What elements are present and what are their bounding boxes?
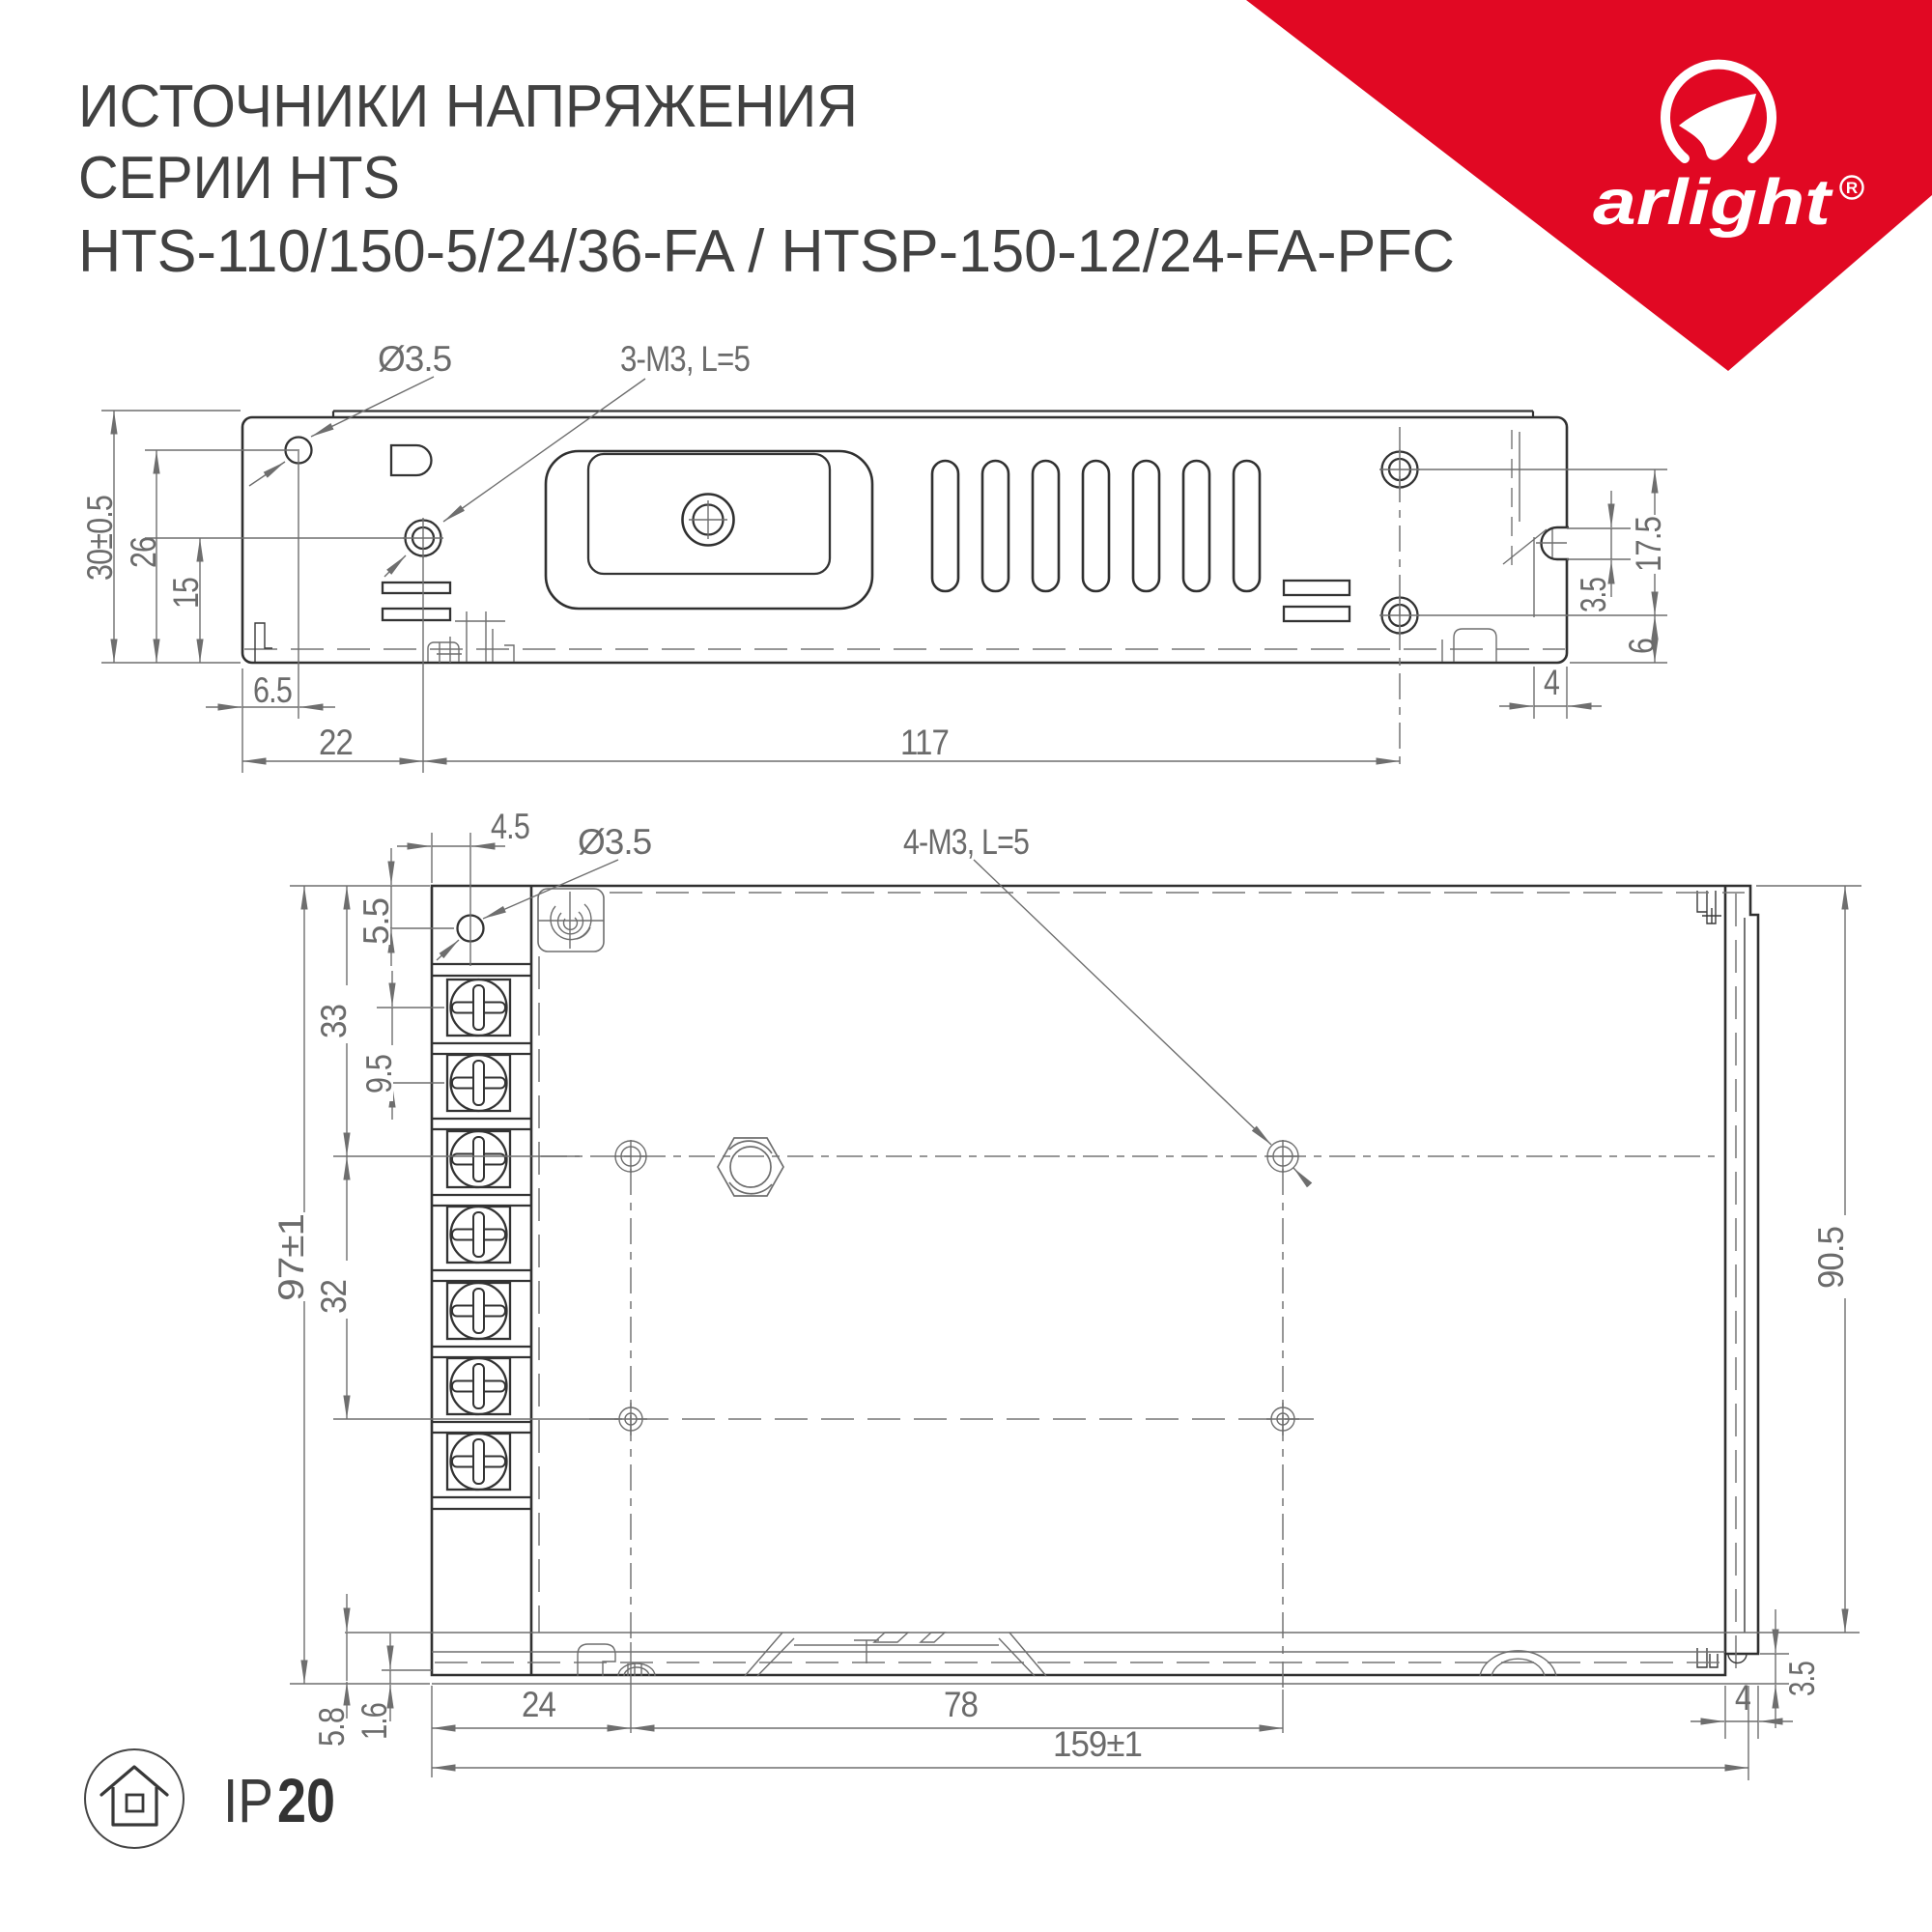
svg-text:Ø3.5: Ø3.5 (578, 822, 652, 862)
svg-text:4.5: 4.5 (491, 807, 529, 846)
svg-text:30±0.5: 30±0.5 (80, 496, 120, 581)
svg-text:6: 6 (1622, 639, 1662, 654)
svg-text:159±1: 159±1 (1053, 1724, 1142, 1764)
svg-text:26: 26 (124, 537, 163, 568)
svg-text:15: 15 (166, 578, 206, 609)
svg-text:78: 78 (944, 1685, 978, 1724)
svg-text:20: 20 (277, 1766, 335, 1835)
svg-text:arlight: arlight (1593, 166, 1833, 239)
svg-text:4: 4 (1735, 1678, 1750, 1718)
svg-text:24: 24 (522, 1685, 555, 1724)
svg-text:СЕРИИ HTS: СЕРИИ HTS (78, 145, 400, 212)
svg-text:32: 32 (314, 1280, 354, 1314)
svg-text:1.6: 1.6 (355, 1703, 394, 1740)
svg-text:ИСТОЧНИКИ НАПРЯЖЕНИЯ: ИСТОЧНИКИ НАПРЯЖЕНИЯ (78, 73, 858, 140)
svg-text:33: 33 (314, 1005, 354, 1038)
svg-text:117: 117 (900, 723, 949, 762)
svg-text:17.5: 17.5 (1629, 517, 1668, 572)
svg-text:3.5: 3.5 (1574, 578, 1613, 612)
svg-text:4: 4 (1544, 663, 1559, 702)
svg-text:Ø3.5: Ø3.5 (378, 339, 452, 379)
svg-text:6.5: 6.5 (253, 670, 292, 710)
svg-text:4-M3, L=5: 4-M3, L=5 (903, 822, 1029, 862)
svg-text:97±1: 97±1 (271, 1214, 311, 1301)
svg-text:3.5: 3.5 (1782, 1662, 1822, 1696)
svg-text:HTS-110/150-5/24/36-FA / HTSP-: HTS-110/150-5/24/36-FA / HTSP-150-12/24-… (78, 218, 1455, 285)
svg-text:9.5: 9.5 (359, 1055, 399, 1094)
svg-text:5.8: 5.8 (312, 1708, 352, 1747)
svg-text:3-M3, L=5: 3-M3, L=5 (620, 339, 750, 379)
svg-text:R: R (1846, 179, 1858, 197)
svg-text:22: 22 (319, 723, 353, 762)
svg-text:IP: IP (223, 1766, 273, 1835)
svg-text:90.5: 90.5 (1811, 1227, 1851, 1289)
svg-text:5.5: 5.5 (356, 898, 396, 945)
